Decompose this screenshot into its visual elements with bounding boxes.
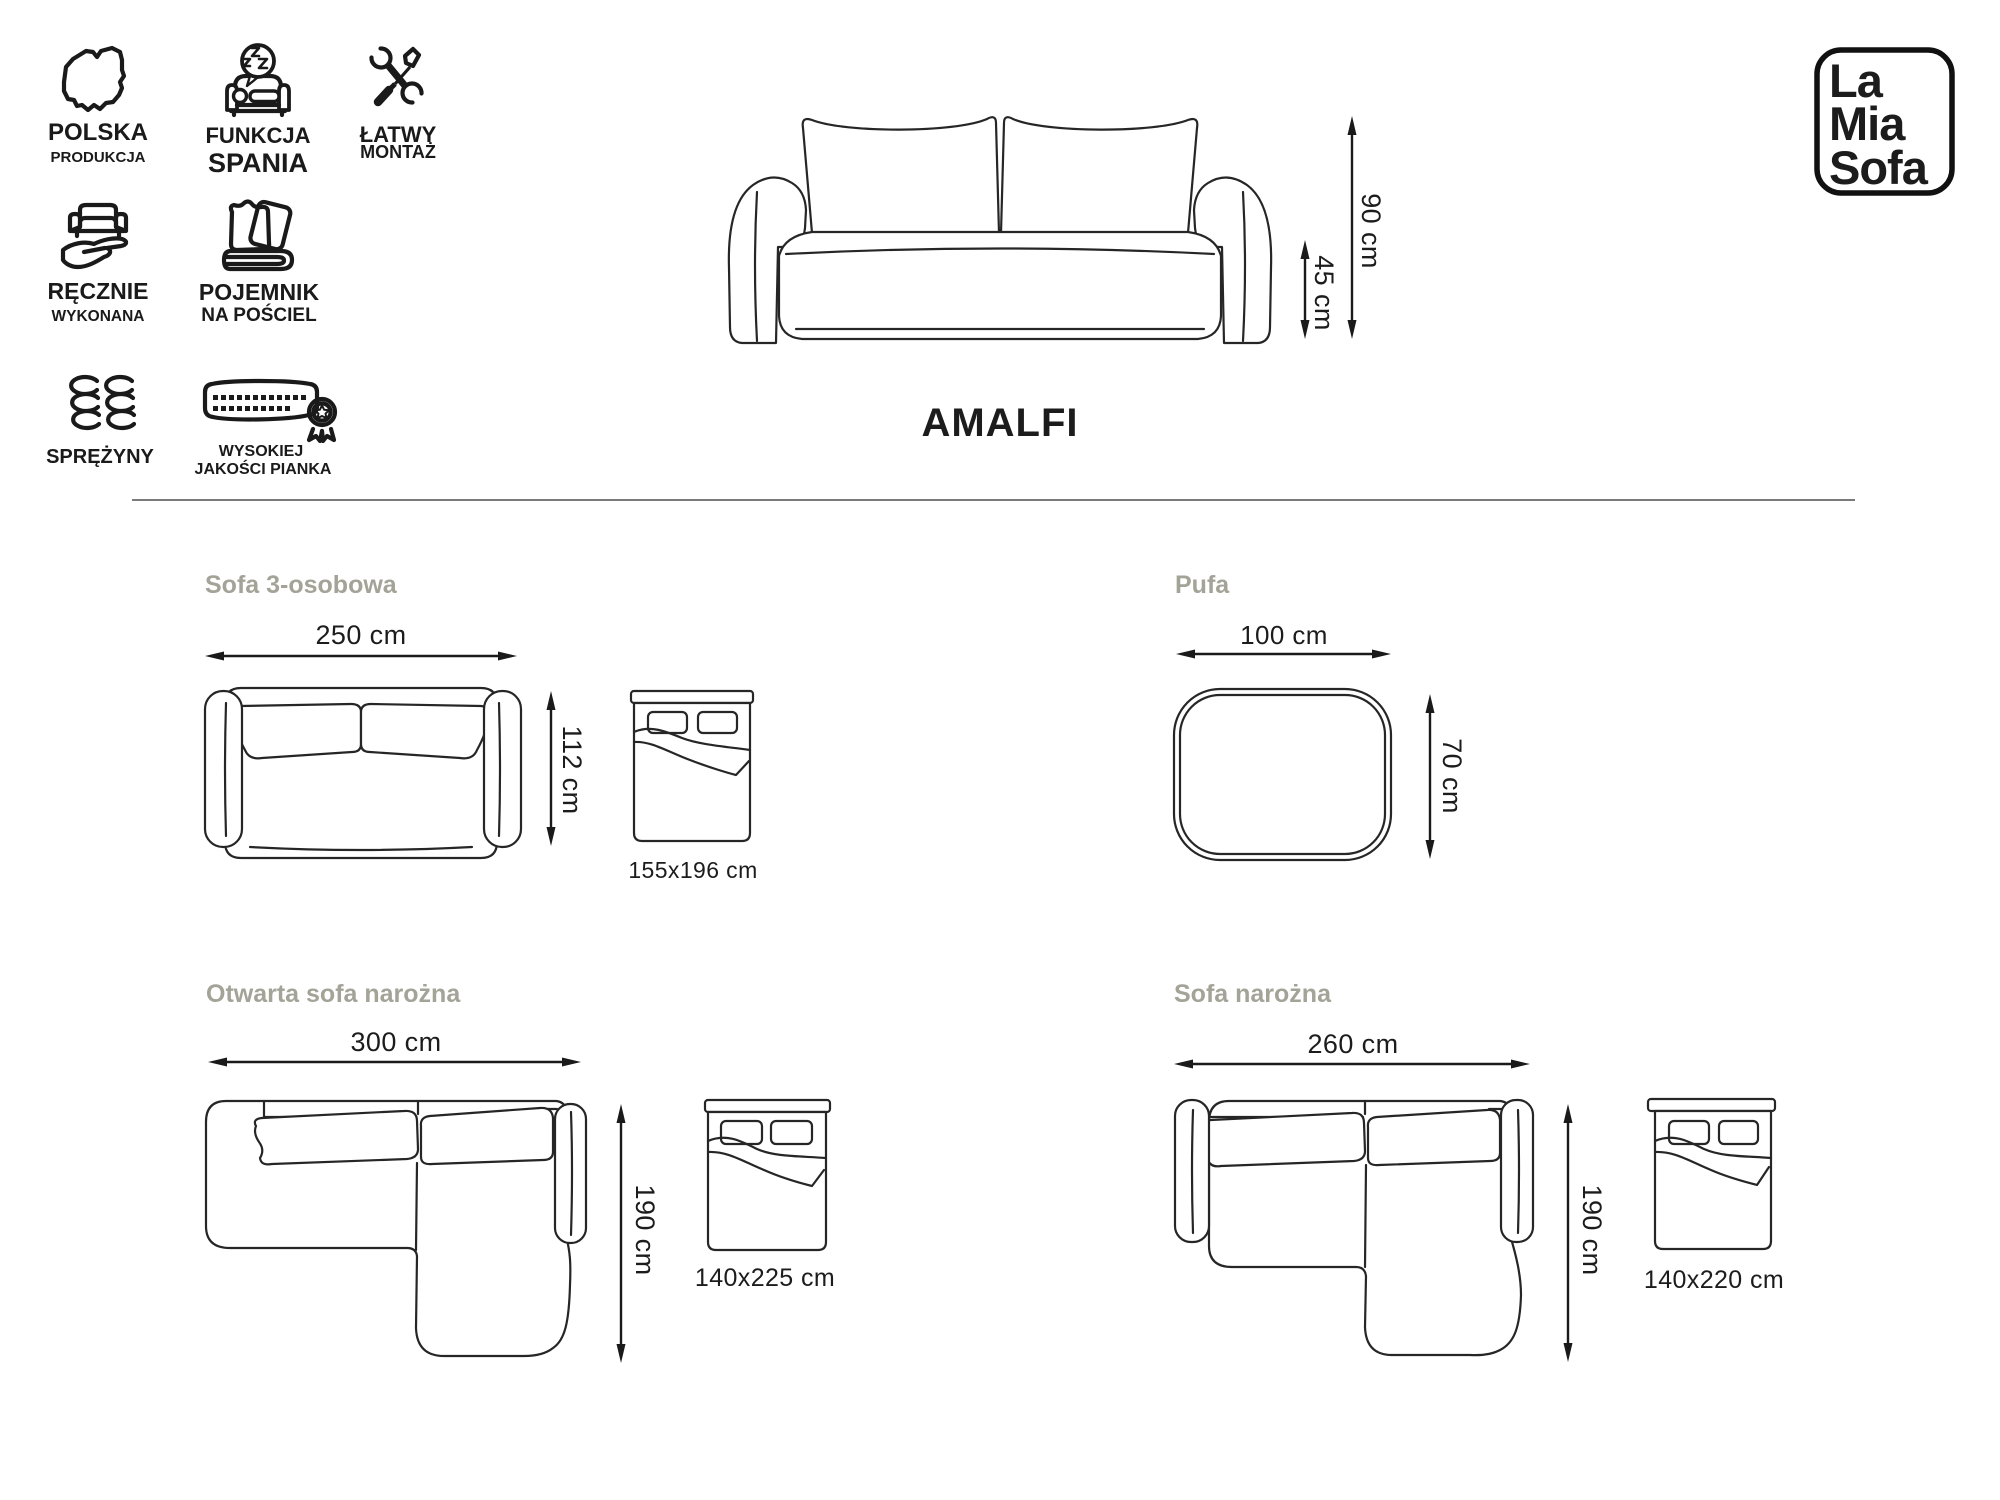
svg-text:Sofa narożna: Sofa narożna xyxy=(1174,980,1332,1008)
svg-text:POLSKA: POLSKA xyxy=(48,119,148,146)
svg-text:112 cm: 112 cm xyxy=(557,726,587,815)
svg-text:SPANIA: SPANIA xyxy=(208,148,308,178)
svg-text:AMALFI: AMALFI xyxy=(921,401,1078,445)
svg-text:155x196 cm: 155x196 cm xyxy=(628,857,757,883)
svg-text:300 cm: 300 cm xyxy=(351,1027,442,1057)
svg-text:Sofa: Sofa xyxy=(1829,141,1929,194)
svg-text:WYKONANA: WYKONANA xyxy=(52,308,145,325)
svg-text:190 cm: 190 cm xyxy=(630,1185,660,1276)
svg-text:MONTAŻ: MONTAŻ xyxy=(360,142,436,162)
svg-text:WYSOKIEJ: WYSOKIEJ xyxy=(219,443,303,460)
svg-text:190 cm: 190 cm xyxy=(1577,1185,1607,1276)
svg-text:Pufa: Pufa xyxy=(1175,571,1230,599)
svg-text:Sofa 3-osobowa: Sofa 3-osobowa xyxy=(205,571,398,599)
svg-text:PRODUKCJA: PRODUKCJA xyxy=(50,149,145,166)
svg-text:70 cm: 70 cm xyxy=(1437,738,1467,814)
svg-text:POJEMNIK: POJEMNIK xyxy=(199,279,320,305)
svg-text:90 cm: 90 cm xyxy=(1356,193,1386,269)
svg-text:260 cm: 260 cm xyxy=(1308,1029,1399,1059)
svg-text:JAKOŚCI PIANKA: JAKOŚCI PIANKA xyxy=(195,459,332,478)
svg-text:Otwarta sofa narożna: Otwarta sofa narożna xyxy=(206,980,461,1008)
svg-text:FUNKCJA: FUNKCJA xyxy=(205,123,310,148)
svg-text:NA POŚCIEL: NA POŚCIEL xyxy=(201,304,317,326)
svg-text:45 cm: 45 cm xyxy=(1309,255,1339,331)
svg-text:100 cm: 100 cm xyxy=(1240,620,1328,650)
svg-text:140x225 cm: 140x225 cm xyxy=(695,1264,835,1292)
svg-text:SPRĘŻYNY: SPRĘŻYNY xyxy=(46,445,154,468)
svg-text:RĘCZNIE: RĘCZNIE xyxy=(48,278,149,304)
svg-text:140x220 cm: 140x220 cm xyxy=(1644,1266,1784,1294)
svg-text:250 cm: 250 cm xyxy=(316,620,407,650)
